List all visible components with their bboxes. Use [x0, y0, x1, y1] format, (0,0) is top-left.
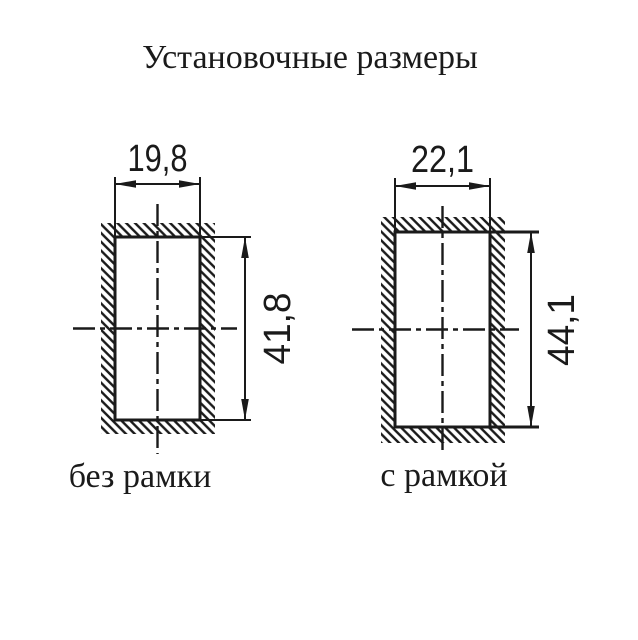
page-title: Установочные размеры	[142, 39, 478, 76]
drawing-without-frame: 19,8 41,8 без рамки	[69, 138, 299, 495]
height-dimension-label: 44,1	[541, 294, 583, 366]
installation-dimensions-diagram: Установочные размеры 19,8	[0, 0, 638, 640]
caption-without-frame: без рамки	[69, 458, 212, 495]
technical-drawing-page: Установочные размеры 19,8	[0, 0, 638, 640]
arrow-down-icon	[527, 406, 535, 427]
arrow-up-icon	[527, 232, 535, 253]
width-dimension-label: 22,1	[411, 139, 474, 181]
width-dimension-label: 19,8	[128, 138, 188, 180]
arrow-left-icon	[115, 180, 136, 188]
height-dimension-label: 41,8	[257, 293, 299, 365]
drawing-with-frame: 22,1 44,1 с рамкой	[352, 139, 583, 494]
arrow-left-icon	[395, 182, 416, 190]
arrow-right-icon	[179, 180, 200, 188]
arrow-right-icon	[469, 182, 490, 190]
caption-with-frame: с рамкой	[380, 457, 507, 494]
arrow-down-icon	[241, 399, 249, 420]
arrow-up-icon	[241, 237, 249, 258]
